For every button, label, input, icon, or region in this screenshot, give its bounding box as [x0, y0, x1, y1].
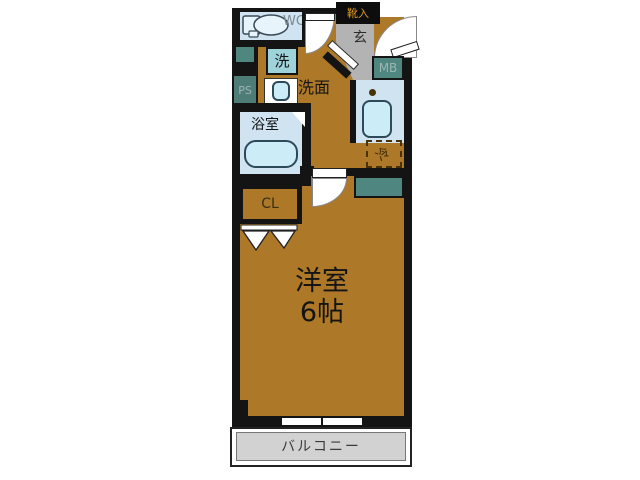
- washer-label: 洗: [274, 54, 289, 69]
- refrigerator-space: 冷: [366, 140, 402, 168]
- kitchen-sink-icon: [362, 100, 392, 138]
- bathroom-label: 浴室: [251, 118, 279, 132]
- shoe-cabinet-label: 靴入: [347, 8, 369, 19]
- folding-door-icon: [240, 224, 298, 252]
- ps-box: PS: [234, 76, 256, 104]
- washbasin-sink-icon: [272, 81, 290, 101]
- window-divider: [321, 417, 323, 426]
- counter-box: [354, 176, 404, 198]
- partition-wall-right: [347, 168, 404, 176]
- room-door-leaf: [312, 168, 347, 178]
- meter-box-label: MB: [379, 62, 398, 74]
- washer-box: 洗: [266, 47, 298, 75]
- balcony-label: バルコニー: [281, 440, 361, 454]
- bottom-left-corner: [240, 400, 248, 416]
- bathtub-icon: [244, 140, 298, 168]
- washroom-label: 洗面: [298, 80, 330, 96]
- duct-box: [236, 47, 254, 62]
- bath-top-wall: [232, 103, 311, 112]
- closet-label: CL: [261, 197, 279, 211]
- balcony: バルコニー: [236, 432, 406, 461]
- entrance-label: 玄: [353, 31, 367, 45]
- wc-door-leaf: [305, 13, 335, 21]
- main-room-size: 6帖: [262, 297, 382, 328]
- closet-box: CL: [238, 184, 302, 224]
- burner-icon: [369, 89, 376, 96]
- meter-box: MB: [372, 56, 404, 80]
- main-room: 洋室 6帖: [262, 266, 382, 328]
- refrigerator-label: 冷: [375, 145, 393, 163]
- shoe-cabinet: 靴入: [336, 2, 380, 24]
- main-room-name: 洋室: [262, 266, 382, 297]
- ps-label: PS: [238, 85, 252, 96]
- floor-plan: WC PS 洗 洗面 浴室 CL 靴入 玄: [0, 0, 640, 480]
